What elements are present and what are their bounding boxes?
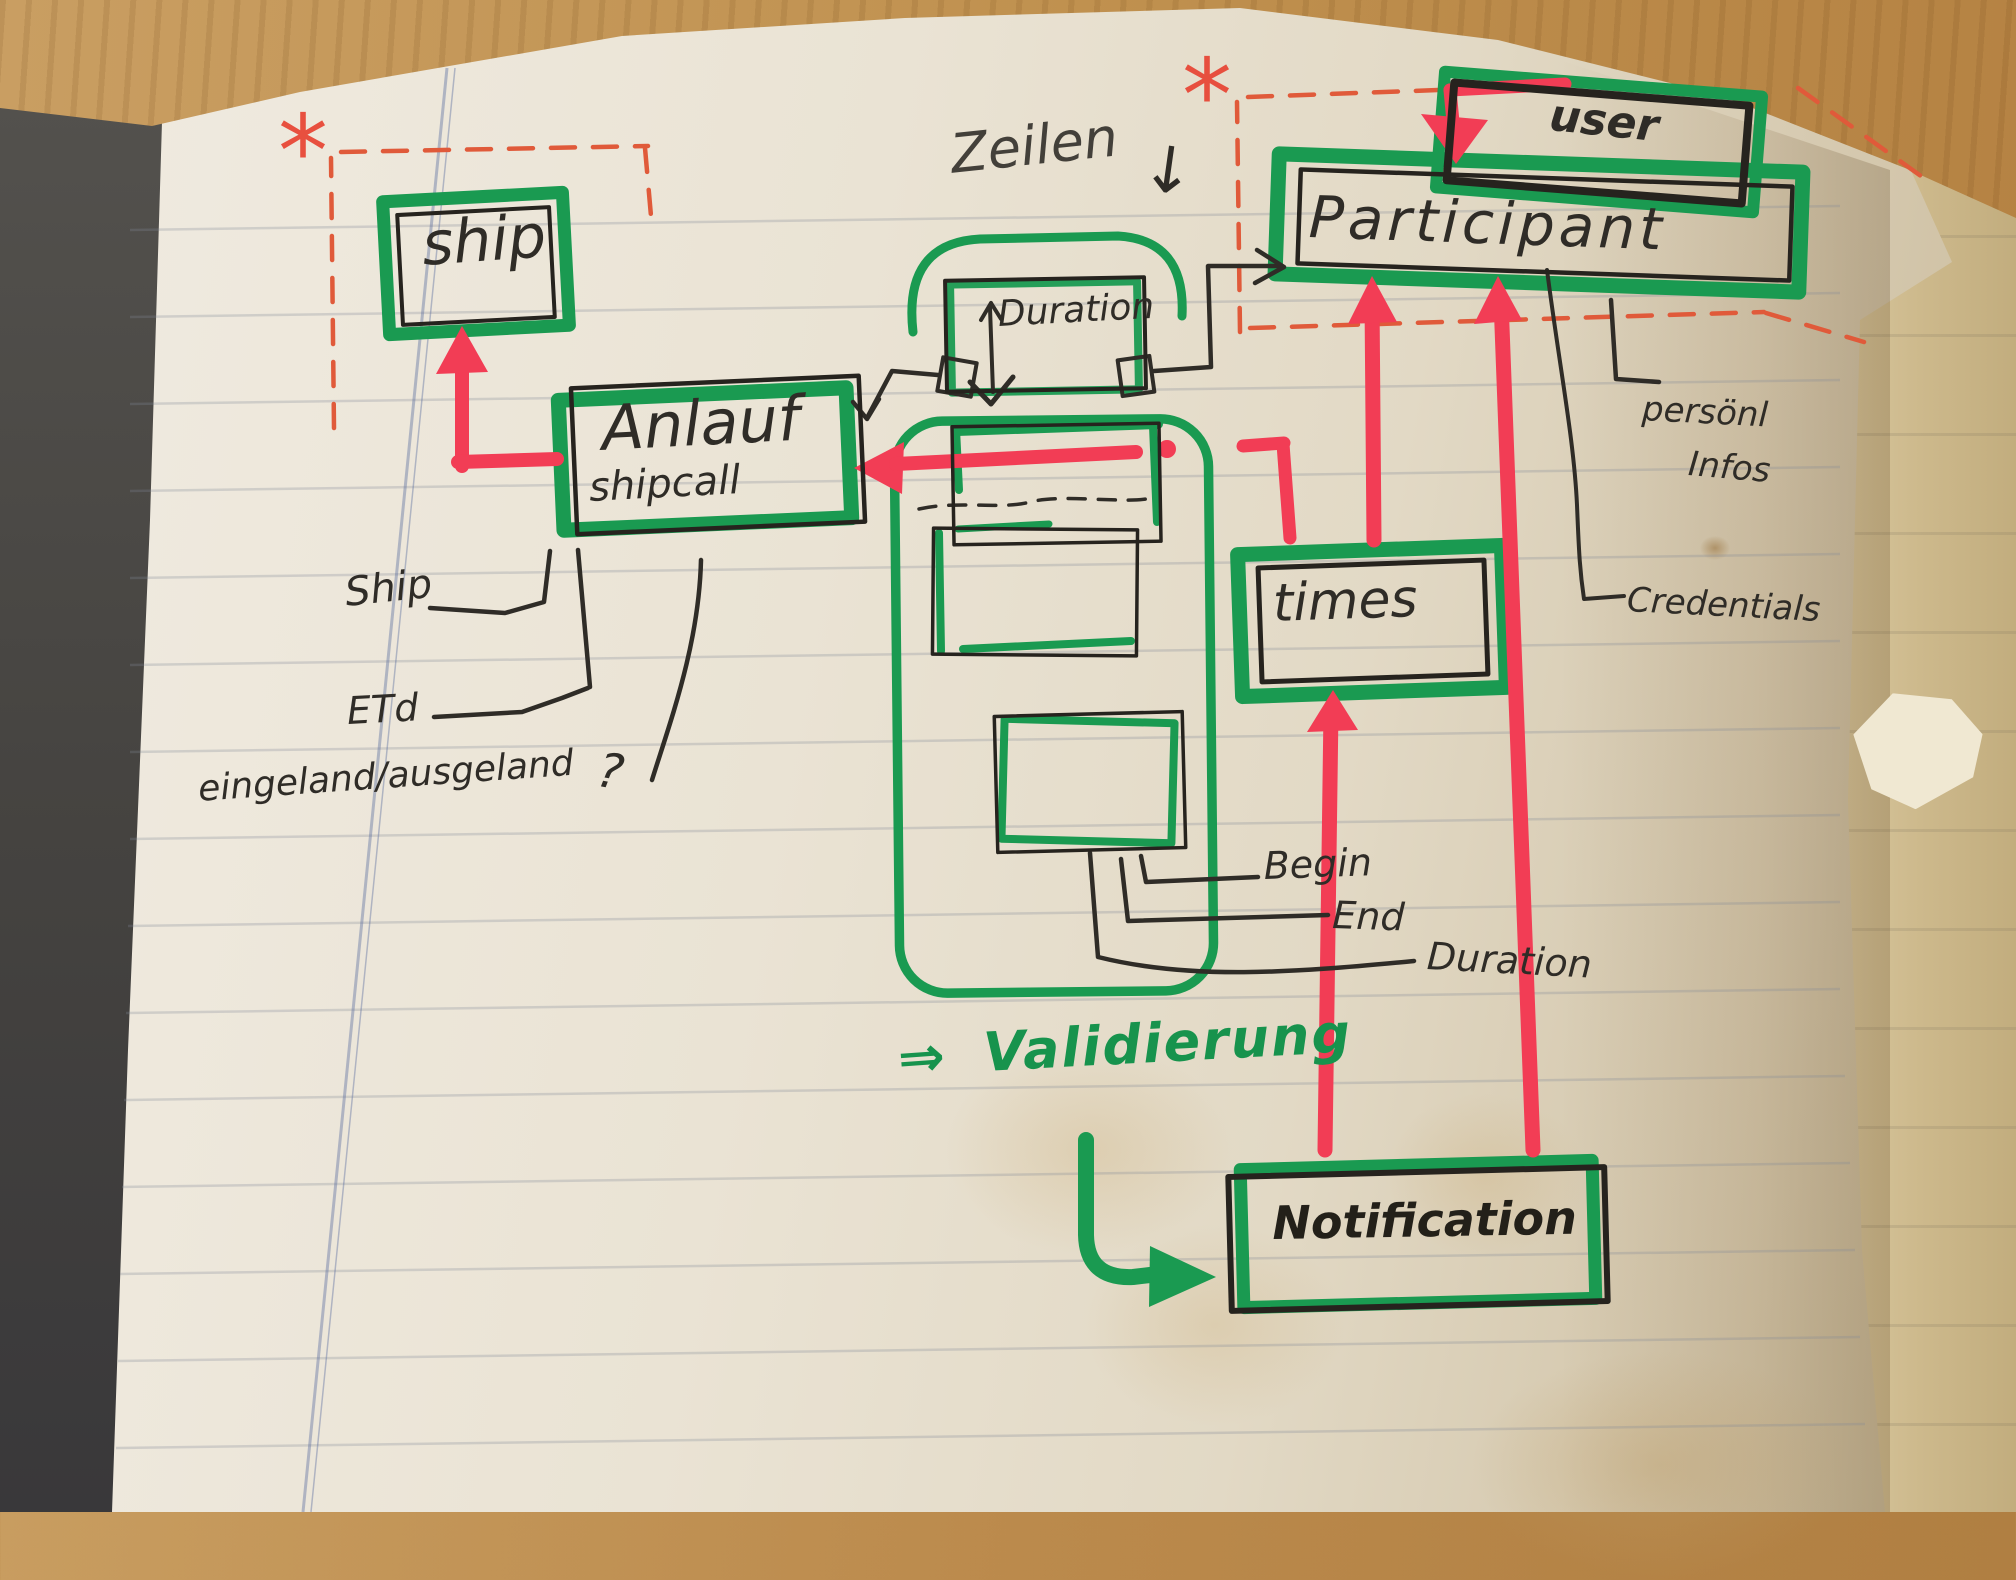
notification-curved-arrow: [1086, 1140, 1150, 1277]
pen-box-outlines: [397, 83, 1792, 1311]
list-box-b: [932, 528, 1137, 656]
ship-attr-label: Ship: [343, 564, 434, 613]
asterisk-ship: *: [278, 122, 328, 182]
personal-infos-label-line2: Infos: [1687, 447, 1772, 488]
shipcall-node-sublabel: shipcall: [588, 460, 741, 508]
link-ship-attr: [430, 551, 550, 613]
personal-infos-label-line1: persönl: [1641, 392, 1769, 433]
down-arrow-icon: ↓: [1137, 136, 1199, 207]
user-node-label: user: [1547, 94, 1660, 149]
duration-vertical-arrow: [990, 308, 993, 392]
begin-attr-label: Begin: [1263, 843, 1372, 885]
arrow-notification-to-participant: [1474, 276, 1533, 1150]
link-personal-infos: [1611, 300, 1659, 382]
asterisk-participant: *: [1182, 66, 1232, 126]
link-begin: [1141, 856, 1258, 882]
link-etd-attr: [434, 550, 590, 717]
etd-attr-label: ETd: [346, 688, 419, 730]
list-box-c: [994, 712, 1185, 853]
anlauf-node-label: Anlauf: [600, 388, 801, 460]
arrow-times-to-anlauf: [854, 440, 1290, 538]
ship-node-label: ship: [420, 206, 548, 275]
notification-curved-arrowhead: [1149, 1246, 1216, 1307]
duration-attr-label: Duration: [1426, 937, 1593, 984]
pen-connectors: [430, 250, 1659, 972]
arrow-times-to-participant: [1348, 276, 1397, 540]
participant-node-label: Participant: [1308, 188, 1667, 258]
times-node-label: times: [1272, 573, 1418, 630]
diagram-strokes: [0, 0, 2016, 1512]
list-box-b-green: [939, 533, 941, 651]
notification-node-label: Notification: [1272, 1195, 1577, 1246]
duration-node-label: Duration: [997, 289, 1155, 333]
zeilen-container: [894, 418, 1214, 993]
end-attr-label: End: [1332, 896, 1406, 936]
arrow-anlauf-to-ship: [436, 326, 557, 466]
credentials-label: Credentials: [1626, 583, 1821, 627]
implies-arrow-icon: ⇒: [896, 1029, 947, 1088]
notebook-photo: * * Zeilen ↓ ship Duration Participant u…: [0, 0, 2016, 1512]
link-inout-attr: [652, 560, 701, 780]
